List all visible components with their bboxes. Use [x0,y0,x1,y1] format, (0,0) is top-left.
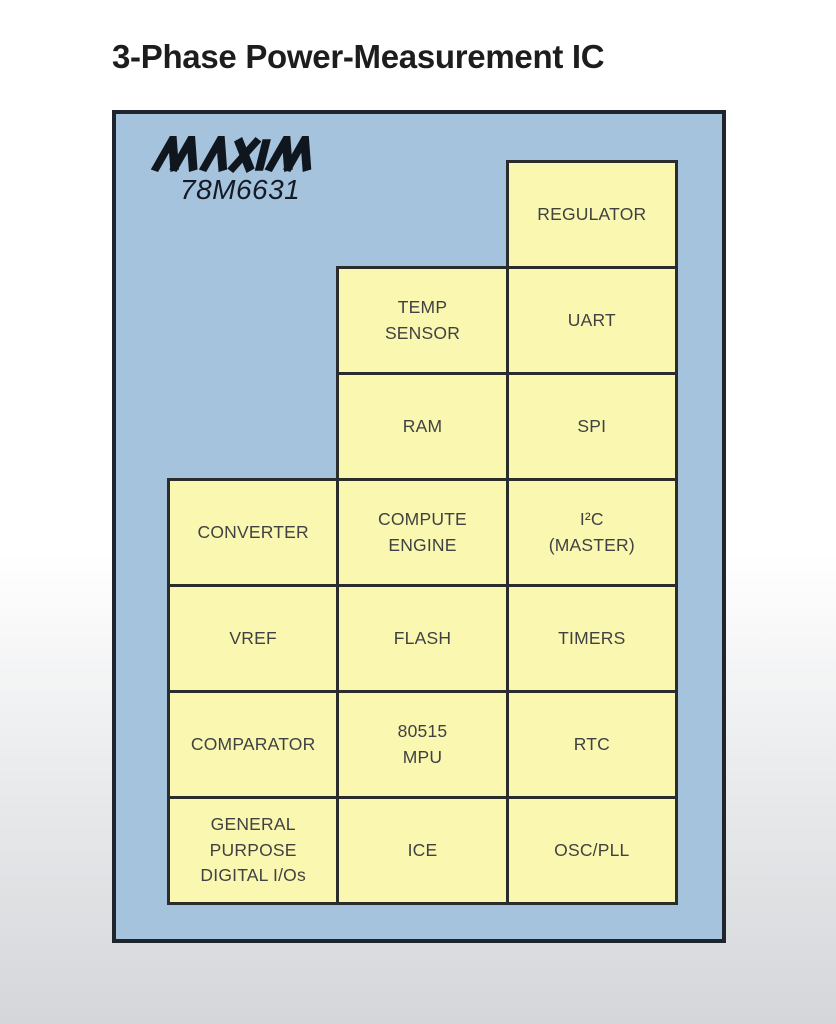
ic-board: 78M6631 REGULATORTEMP SENSORUARTRAMSPICO… [112,110,726,943]
block-compute-engine: COMPUTE ENGINE [336,478,508,587]
block-general-purpose-digital-i-os: GENERAL PURPOSE DIGITAL I/Os [167,796,339,905]
block-i-c-master: I²C (MASTER) [506,478,678,587]
block-rtc: RTC [506,690,678,799]
block-vref: VREF [167,584,339,693]
block-regulator: REGULATOR [506,160,678,269]
block-timers: TIMERS [506,584,678,693]
block-converter: CONVERTER [167,478,339,587]
block-flash: FLASH [336,584,508,693]
block-uart: UART [506,266,678,375]
block-grid: REGULATORTEMP SENSORUARTRAMSPICONVERTERC… [167,160,679,906]
block-ram: RAM [336,372,508,481]
block-osc-pll: OSC/PLL [506,796,678,905]
block-temp-sensor: TEMP SENSOR [336,266,508,375]
block-spi: SPI [506,372,678,481]
page-title: 3-Phase Power-Measurement IC [112,38,604,76]
block-comparator: COMPARATOR [167,690,339,799]
block-80515-mpu: 80515 MPU [336,690,508,799]
page: { "title": "3-Phase Power-Measurement IC… [0,0,836,1024]
block-ice: ICE [336,796,508,905]
